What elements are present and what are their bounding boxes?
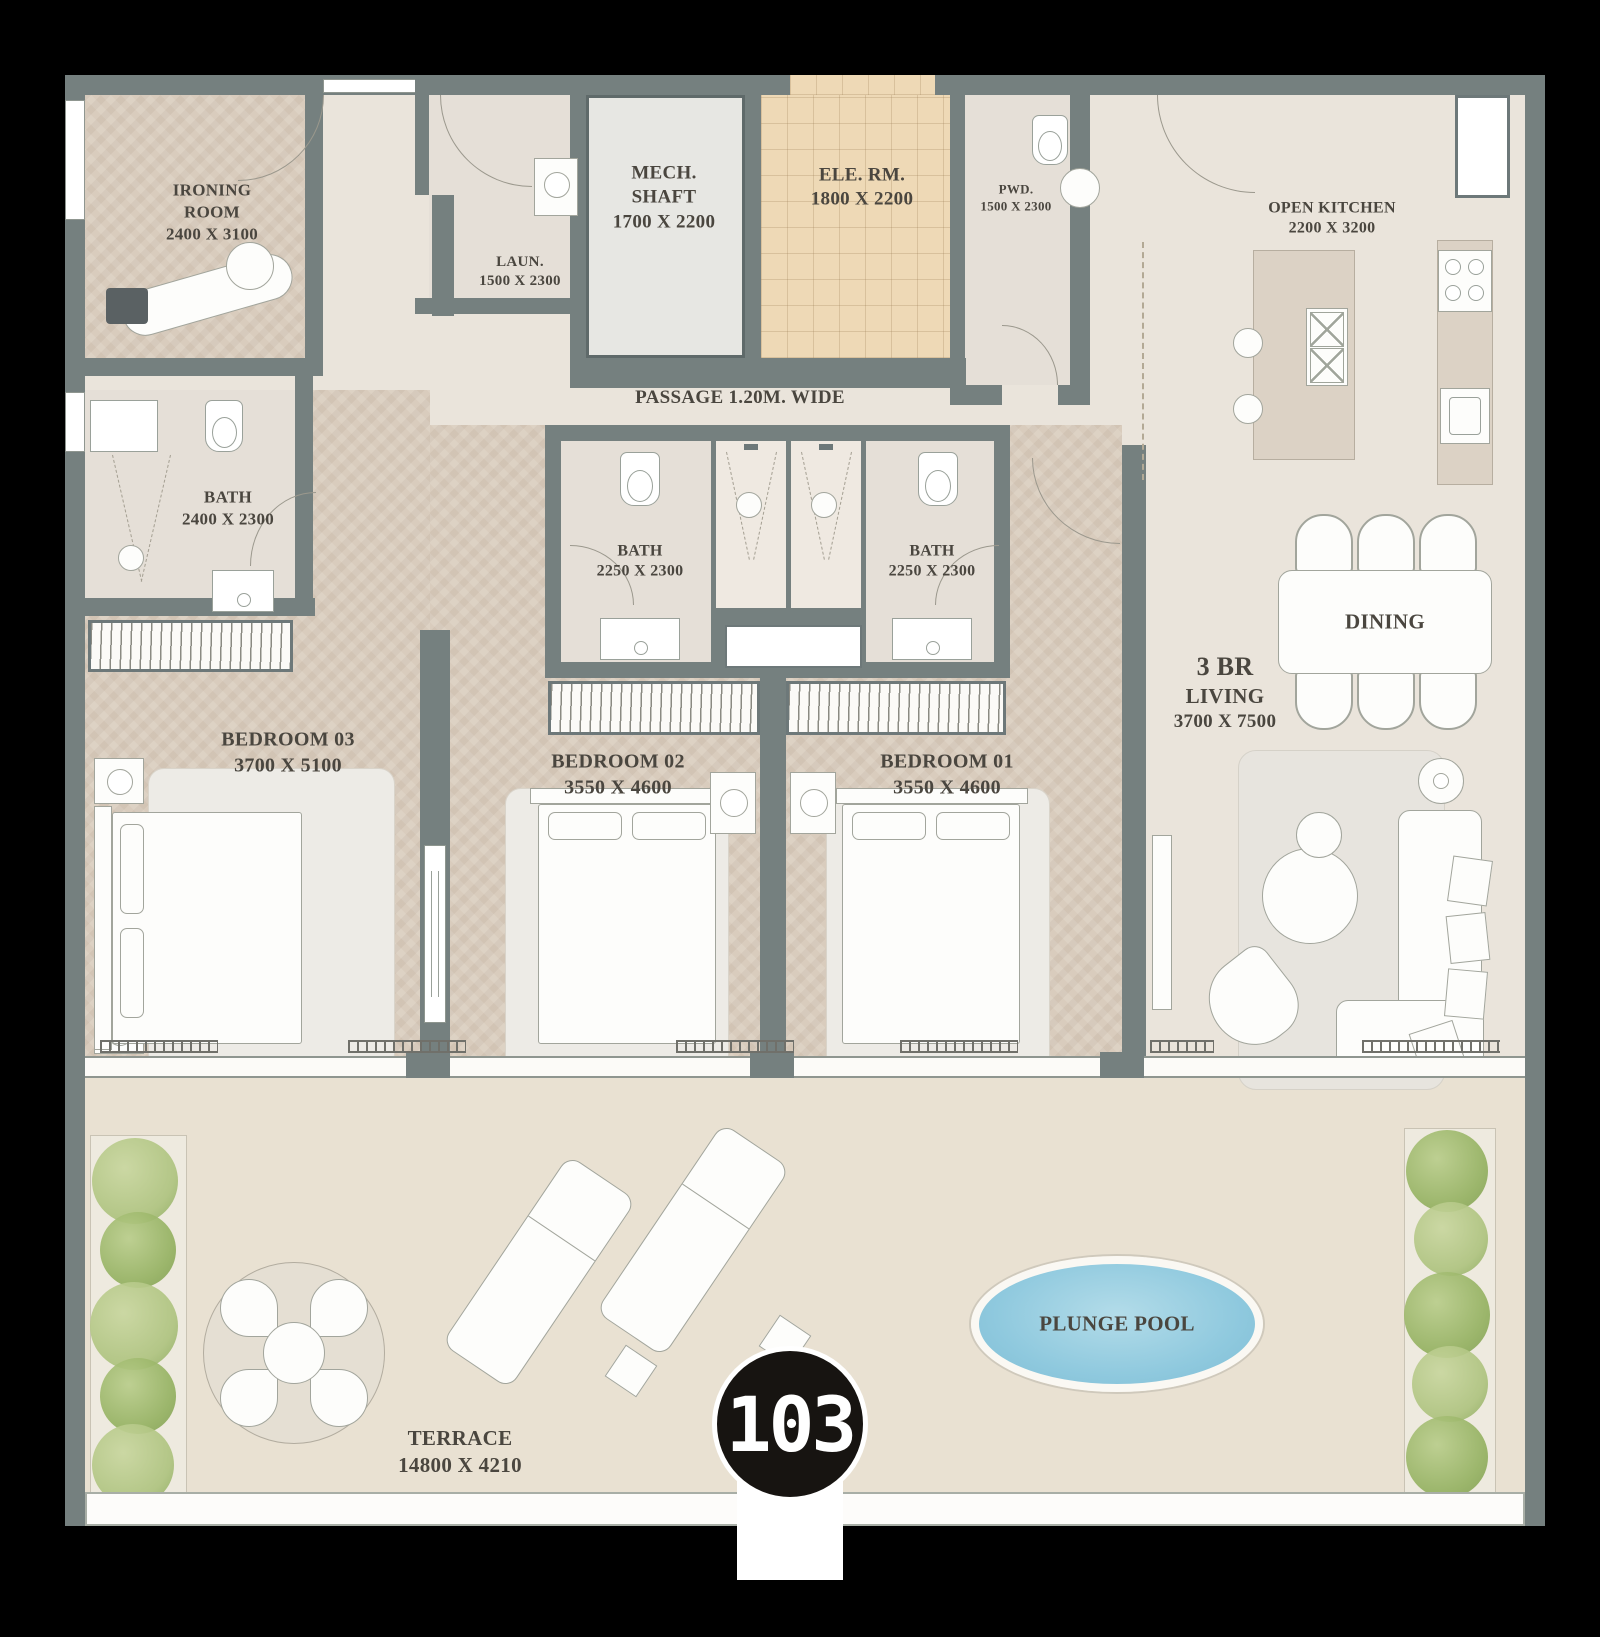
terrace-label: TERRACE14800 X 4210 xyxy=(398,1425,522,1479)
terrace-wall-right xyxy=(1525,1078,1545,1526)
window-pier xyxy=(750,1052,794,1078)
pillow xyxy=(632,812,706,840)
wall-mech-right xyxy=(745,85,761,388)
ironing-room-label: IRONINGROOM2400 X 3100 xyxy=(166,179,258,244)
bath1-label: BATH2250 X 2300 xyxy=(889,542,976,583)
shower-head-icon xyxy=(744,444,758,450)
pillow xyxy=(548,812,622,840)
nightstand xyxy=(710,772,756,834)
dining-chair xyxy=(1295,670,1353,730)
pillow xyxy=(120,928,144,1018)
nightstand xyxy=(790,772,836,834)
sofa-cushion xyxy=(1446,912,1491,964)
terrace-chair xyxy=(310,1369,368,1427)
shower-drain-icon xyxy=(811,492,837,518)
washing-machine-icon xyxy=(534,158,578,216)
shower-head-icon xyxy=(819,444,833,450)
window-left-1 xyxy=(65,100,85,220)
bush-icon xyxy=(90,1282,178,1370)
toilet-icon xyxy=(1032,115,1068,165)
dining-chair xyxy=(1357,514,1415,574)
sink-icon xyxy=(212,570,274,612)
wall-bath3-bottom xyxy=(85,598,315,616)
unit-number-badge: 103 xyxy=(712,1346,868,1502)
window-pier xyxy=(406,1052,450,1078)
stool-icon xyxy=(1233,328,1263,358)
wardrobe-bedroom3 xyxy=(88,620,293,672)
floor-plan: IRONINGROOM2400 X 3100 LAUN.1500 X 2300 … xyxy=(0,0,1600,1637)
dining-label: DINING xyxy=(1345,609,1425,636)
nightstand xyxy=(94,758,144,804)
window-pier xyxy=(1100,1052,1144,1078)
kitchen-divider-line xyxy=(1142,242,1144,480)
living-label: 3 BR LIVING 3700 X 7500 xyxy=(1174,650,1277,734)
basin-icon xyxy=(1060,168,1100,208)
terrace-chair xyxy=(220,1369,278,1427)
bush-icon xyxy=(100,1212,176,1288)
sliding-pocket-door xyxy=(424,845,446,1023)
bush-icon xyxy=(1414,1202,1488,1276)
window-band xyxy=(85,1056,1525,1078)
window-top-left xyxy=(323,79,417,93)
wall-bedroom1-living xyxy=(1122,445,1146,1058)
wall-mech-left xyxy=(570,75,586,388)
bath-master-label: BATH2400 X 2300 xyxy=(182,486,274,530)
toilet-icon xyxy=(205,400,243,452)
open-kitchen-label: OPEN KITCHEN2200 X 3200 xyxy=(1268,199,1396,240)
sink-icon xyxy=(600,618,680,660)
ele-shaft-protrusion xyxy=(790,75,935,95)
mech-shaft-label: MECH.SHAFT1700 X 2200 xyxy=(613,162,716,235)
island-sink-icon xyxy=(1306,308,1348,386)
sliding-door-track xyxy=(100,1040,218,1053)
terrace-wall-left xyxy=(65,1078,85,1526)
bush-icon xyxy=(100,1358,176,1434)
coffee-table xyxy=(1262,848,1358,944)
bedroom2-label: BEDROOM 023550 X 4600 xyxy=(551,749,685,800)
bath2-label: BATH2250 X 2300 xyxy=(597,542,684,583)
sofa-cushion xyxy=(1444,968,1488,1019)
wall-laundry-left xyxy=(415,75,429,195)
wall-pwd-right xyxy=(1070,75,1090,405)
stool-icon xyxy=(1233,394,1263,424)
wardrobe-bedroom1 xyxy=(786,681,1006,735)
dining-chair xyxy=(1419,514,1477,574)
wall-bedroom2-1 xyxy=(760,662,786,1058)
shower-drain-icon xyxy=(736,492,762,518)
pillow xyxy=(120,824,144,914)
sliding-door-track xyxy=(1362,1040,1500,1053)
bath-master-closet xyxy=(90,400,158,452)
wall-pwd-bottom-right xyxy=(1058,385,1090,405)
shower2-floor xyxy=(716,441,786,608)
plant-icon xyxy=(1418,758,1464,804)
terrace-seating-set xyxy=(203,1262,385,1444)
outer-wall-left xyxy=(65,75,85,1078)
bed-headboard xyxy=(94,806,112,1050)
bedroom3-label: BEDROOM 033700 X 5100 xyxy=(221,727,355,778)
unit-number: 103 xyxy=(726,1380,854,1469)
wall-laundry-bottom xyxy=(415,298,576,314)
bed xyxy=(538,804,716,1044)
toilet-icon xyxy=(918,452,958,506)
laundry-label: LAUN.1500 X 2300 xyxy=(479,253,561,291)
bed xyxy=(842,804,1020,1044)
shower1-floor xyxy=(791,441,861,608)
stove-icon xyxy=(1438,250,1492,312)
wall-topblock-bottom xyxy=(570,358,966,388)
dining-chair xyxy=(1357,670,1415,730)
sliding-door-track xyxy=(676,1040,794,1053)
tv-console xyxy=(1152,835,1172,1010)
shower-drain-icon xyxy=(118,545,144,571)
sliding-door-track xyxy=(1150,1040,1214,1053)
toilet-icon xyxy=(620,452,660,506)
bush-icon xyxy=(1406,1130,1488,1212)
sliding-door-track xyxy=(348,1040,466,1053)
wardrobe-bedroom2 xyxy=(548,681,760,735)
terrace-table xyxy=(263,1322,325,1384)
pillow xyxy=(852,812,926,840)
ele-room-floor xyxy=(761,95,950,358)
terrace-chair xyxy=(310,1279,368,1337)
bath-niche xyxy=(725,625,862,668)
dining-chair xyxy=(1419,670,1477,730)
bush-icon xyxy=(1406,1416,1488,1498)
side-table xyxy=(1296,812,1342,858)
sliding-door-track xyxy=(900,1040,1018,1053)
pillow xyxy=(936,812,1010,840)
kitchen-sink-icon xyxy=(1440,388,1490,444)
sofa-cushion xyxy=(1447,855,1493,906)
wall-pwd-bottom-left xyxy=(950,385,1002,405)
kitchen-niche xyxy=(1455,95,1510,198)
passage-label: PASSAGE 1.20M. WIDE xyxy=(635,386,845,410)
ironing-chair-icon xyxy=(226,242,274,290)
plunge-pool-label: PLUNGE POOL xyxy=(1039,1311,1195,1338)
bedroom1-label: BEDROOM 013550 X 4600 xyxy=(880,749,1014,800)
bush-icon xyxy=(1412,1346,1488,1422)
wall-pwd-left xyxy=(950,85,965,388)
outer-wall-right xyxy=(1525,75,1545,1078)
window-left-2 xyxy=(65,392,85,452)
terrace-chair xyxy=(220,1279,278,1337)
pwd-label: PWD.1500 X 2300 xyxy=(980,181,1051,214)
sink-icon xyxy=(892,618,972,660)
ele-room-label: ELE. RM.1800 X 2200 xyxy=(811,164,914,213)
dining-chair xyxy=(1295,514,1353,574)
iron-icon xyxy=(106,288,148,324)
wall-below-ironing xyxy=(65,358,323,376)
